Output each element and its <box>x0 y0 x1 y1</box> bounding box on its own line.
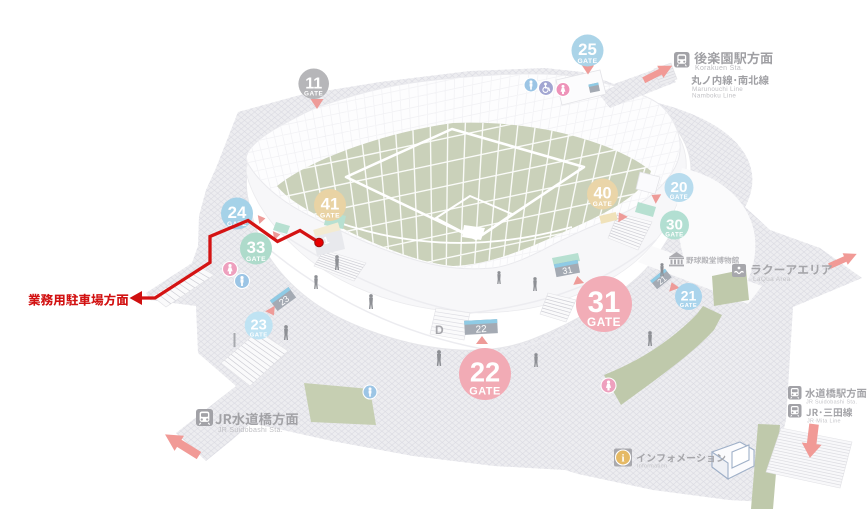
svg-text:LaQua Area: LaQua Area <box>753 276 791 283</box>
svg-text:GATE: GATE <box>250 332 268 338</box>
svg-text:JR Suidobashi Sta.: JR Suidobashi Sta. <box>806 400 857 406</box>
svg-text:GATE: GATE <box>670 194 688 201</box>
svg-text:11: 11 <box>305 74 322 92</box>
svg-text:JR Suidobashi Sta.: JR Suidobashi Sta. <box>218 427 283 434</box>
svg-text:31: 31 <box>561 265 573 277</box>
svg-text:GATE: GATE <box>593 201 613 208</box>
svg-text:D: D <box>435 323 444 337</box>
svg-text:23: 23 <box>251 318 267 334</box>
svg-text:Namboku Line: Namboku Line <box>692 93 736 100</box>
svg-text:40: 40 <box>593 185 611 203</box>
svg-text:41: 41 <box>321 195 340 214</box>
svg-text:GATE: GATE <box>680 303 697 309</box>
svg-text:22: 22 <box>475 324 487 336</box>
svg-text:GATE: GATE <box>304 91 324 98</box>
svg-text:JR·Mita Line: JR·Mita Line <box>807 419 841 425</box>
svg-text:25: 25 <box>578 40 597 59</box>
svg-text:GATE: GATE <box>246 256 266 263</box>
svg-text:GATE: GATE <box>320 212 340 219</box>
svg-text:Korakuen Sta.: Korakuen Sta. <box>695 65 743 72</box>
svg-text:Information: Information <box>637 464 667 470</box>
svg-text:33: 33 <box>247 238 266 257</box>
svg-text:GATE: GATE <box>665 231 683 238</box>
svg-text:GATE: GATE <box>577 58 597 65</box>
svg-text:GATE: GATE <box>587 315 621 329</box>
svg-text:i: i <box>621 452 624 464</box>
svg-text:24: 24 <box>228 203 247 222</box>
svg-text:GATE: GATE <box>469 385 500 397</box>
svg-text:22: 22 <box>470 357 500 388</box>
